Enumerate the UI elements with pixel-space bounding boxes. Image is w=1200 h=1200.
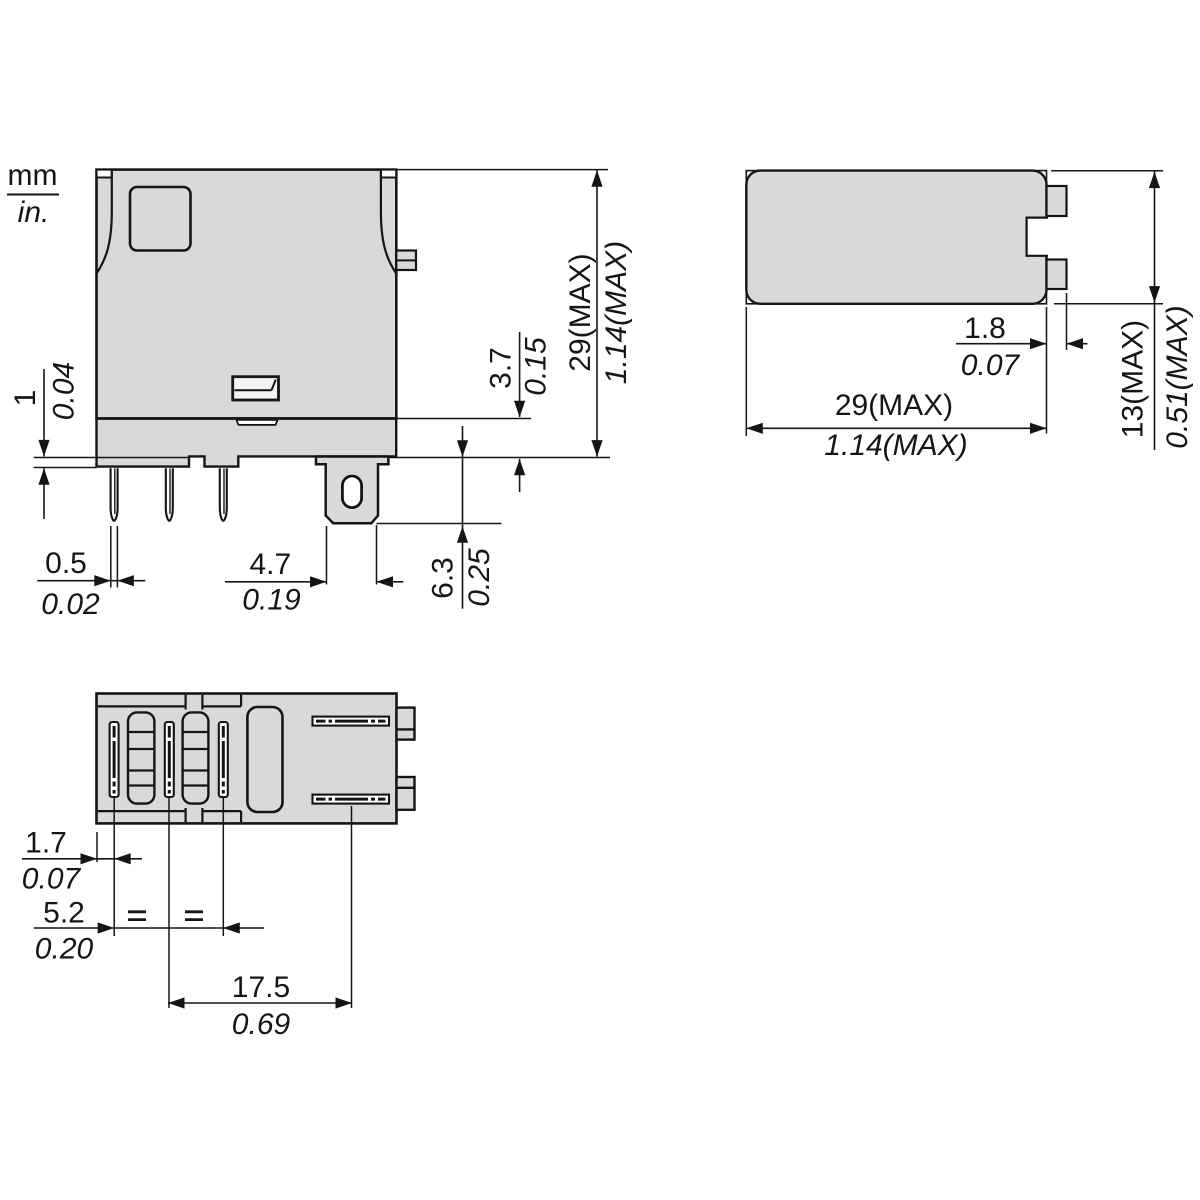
svg-text:1.8: 1.8 — [964, 312, 1006, 345]
svg-text:0.04: 0.04 — [48, 362, 81, 420]
svg-text:1.14(MAX): 1.14(MAX) — [824, 429, 967, 462]
svg-text:in.: in. — [18, 196, 50, 229]
svg-text:13(MAX): 13(MAX) — [1117, 320, 1150, 438]
svg-text:0.19: 0.19 — [242, 584, 301, 617]
svg-text:29(MAX): 29(MAX) — [564, 253, 597, 371]
svg-text:1: 1 — [9, 390, 42, 407]
svg-text:4.7: 4.7 — [249, 548, 291, 581]
svg-text:5.2: 5.2 — [43, 897, 85, 930]
svg-text:0.15: 0.15 — [520, 337, 553, 396]
svg-text:0.5: 0.5 — [45, 547, 87, 580]
svg-text:1.14(MAX): 1.14(MAX) — [600, 241, 633, 384]
svg-text:1.7: 1.7 — [25, 827, 67, 860]
svg-text:6.3: 6.3 — [427, 557, 460, 599]
svg-text:0.51(MAX): 0.51(MAX) — [1161, 305, 1194, 448]
svg-text:0.20: 0.20 — [35, 933, 94, 966]
svg-text:0.25: 0.25 — [463, 548, 496, 607]
svg-text:3.7: 3.7 — [485, 347, 518, 389]
svg-text:17.5: 17.5 — [232, 971, 290, 1004]
svg-text:mm: mm — [8, 159, 58, 192]
svg-text:29(MAX): 29(MAX) — [835, 389, 953, 422]
svg-text:0.07: 0.07 — [961, 349, 1021, 382]
svg-text:0.02: 0.02 — [41, 588, 100, 621]
svg-text:0.69: 0.69 — [232, 1008, 291, 1041]
svg-text:0.07: 0.07 — [22, 863, 82, 896]
